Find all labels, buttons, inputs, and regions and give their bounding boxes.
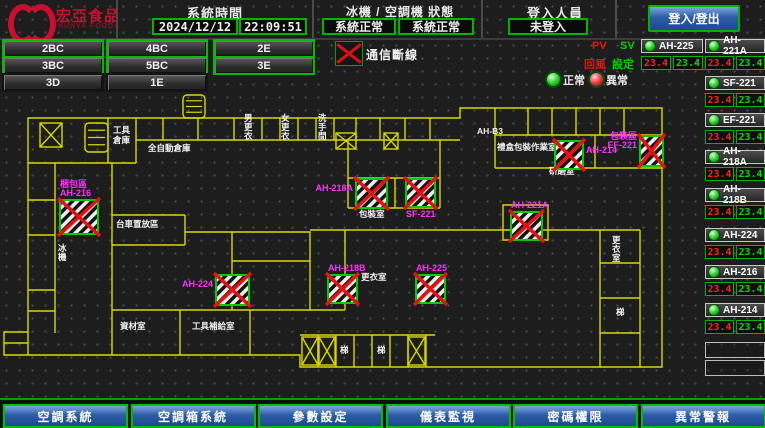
device-label: AH-224 <box>182 279 213 289</box>
device-label: AH-225 <box>416 263 447 273</box>
normal-led-icon <box>545 71 562 88</box>
unit-name-label: AH-225 <box>659 41 693 52</box>
abnormal-legend-label: 異常 <box>606 72 628 88</box>
floor-button-3E[interactable]: 3E <box>213 56 315 75</box>
header-divider <box>481 0 483 38</box>
unit-SF-221[interactable]: SF-221 <box>705 76 765 90</box>
sv-value: 23.4 <box>736 282 765 296</box>
room-label: 台車置放區 <box>116 219 159 229</box>
sv-column-label: SV <box>620 40 635 52</box>
sv-value: 23.4 <box>673 56 703 70</box>
unit-name-label: AH-218B <box>723 184 764 206</box>
unit-AH-221A[interactable]: AH-221A <box>705 39 765 53</box>
room-label: 梯 <box>377 345 386 355</box>
unit-AH-225[interactable]: AH-225 <box>641 39 703 53</box>
sv-value: 23.4 <box>736 130 765 144</box>
chiller-status-value: 系統正常 <box>322 18 396 35</box>
device-label: 梱包區AH-216 <box>60 178 91 198</box>
header-bar: 宏亞食品 HUNYA FOODS 系統時間 2024/12/12 22:09:5… <box>0 0 765 40</box>
room-label: 禮盒包裝作業室 <box>497 142 557 152</box>
unit-AH-224[interactable]: AH-224 <box>705 228 765 242</box>
sv-desc-label: 設定 <box>612 56 634 72</box>
status-led-icon <box>708 40 720 52</box>
unit-name-label: SF-221 <box>723 78 756 89</box>
status-led-icon <box>644 40 656 52</box>
sv-value: 23.4 <box>736 167 765 181</box>
status-led-icon <box>708 77 720 89</box>
room-label: 更衣室 <box>612 235 621 263</box>
plan-device-AH-218A[interactable]: AH-218A <box>315 177 389 210</box>
login-logout-button[interactable]: 登入/登出 <box>648 5 740 32</box>
room-label: 男更衣 <box>244 113 253 141</box>
unit-values-AH-216: 23.423.4 <box>705 282 765 296</box>
room-label: 洗手間 <box>318 113 327 141</box>
unit-name-label: EF-221 <box>723 115 756 126</box>
room-label: 冰機 <box>58 243 67 262</box>
empty-unit-slot <box>705 360 765 376</box>
device-label: 包裝區EF-221 <box>607 130 637 150</box>
empty-unit-slot <box>705 342 765 358</box>
room-label: 梯 <box>616 307 625 317</box>
pv-value: 23.4 <box>705 282 734 296</box>
room-label: 更衣室 <box>361 272 387 282</box>
pv-value: 23.4 <box>705 245 734 259</box>
sv-value: 23.4 <box>736 93 765 107</box>
unit-name-label: AH-218A <box>723 146 764 168</box>
header-divider <box>615 0 617 38</box>
status-led-icon <box>708 304 720 316</box>
unit-name-label: AH-214 <box>723 305 757 316</box>
menu-button-6[interactable]: 異常警報 <box>641 404 765 428</box>
room-label: 包裝室 <box>359 209 385 219</box>
device-label: AH-221A <box>511 200 549 210</box>
plan-wall <box>180 310 250 355</box>
plan-device-EF-221[interactable]: 包裝區EF-221 <box>607 130 665 168</box>
floor-button-1E[interactable]: 1E <box>106 73 208 92</box>
comm-loss-icon <box>335 41 363 66</box>
plan-device-AH-225[interactable]: AH-225 <box>414 263 447 305</box>
pv-desc-label: 回風 <box>584 56 606 72</box>
pv-column-label: PV <box>592 40 607 52</box>
sv-value: 23.4 <box>736 320 765 334</box>
unit-AH-218A[interactable]: AH-218A <box>705 150 765 164</box>
header-divider <box>116 0 118 38</box>
status-led-icon <box>708 229 720 241</box>
room-label: 全自動倉庫 <box>147 143 191 153</box>
header-divider <box>312 0 314 38</box>
abnormal-led-icon <box>588 71 605 88</box>
sv-value: 23.4 <box>736 56 765 70</box>
sv-value: 23.4 <box>736 245 765 259</box>
pv-value: 23.4 <box>705 167 734 181</box>
ahu-status-value: 系統正常 <box>398 18 474 35</box>
floor-plan-svg: 工具倉庫全自動倉庫男更衣女更衣洗手間台車置放區AH-B3禮盒包裝作業室研磨室包裝… <box>0 93 703 400</box>
login-user-value: 未登入 <box>508 18 588 35</box>
room-label: AH-B3 <box>477 126 503 136</box>
plan-device-SF-221[interactable]: SF-221 <box>404 177 437 219</box>
unit-AH-218B[interactable]: AH-218B <box>705 188 765 202</box>
system-date-value: 2024/12/12 <box>152 18 238 35</box>
unit-values-AH-224: 23.423.4 <box>705 245 765 259</box>
company-name-en: HUNYA FOODS <box>58 23 120 30</box>
system-clock-value: 22:09:51 <box>239 18 307 35</box>
plan-wall <box>28 163 55 333</box>
menu-button-4[interactable]: 儀表監視 <box>386 404 511 428</box>
comm-loss-label: 通信斷線 <box>366 46 418 63</box>
plan-wall <box>163 118 430 140</box>
pv-value: 23.4 <box>705 205 734 219</box>
unit-values-AH-214: 23.423.4 <box>705 320 765 334</box>
status-led-icon <box>708 151 720 163</box>
unit-name-label: AH-224 <box>723 230 757 241</box>
status-led-icon <box>708 266 720 278</box>
unit-values-AH-221A: 23.423.4 <box>705 56 765 70</box>
unit-name-label: AH-216 <box>723 267 757 278</box>
unit-AH-214[interactable]: AH-214 <box>705 303 765 317</box>
device-label: AH-218A <box>315 183 353 193</box>
unit-name-label: AH-221A <box>723 35 764 57</box>
menu-button-5[interactable]: 密碼權限 <box>513 404 638 428</box>
plan-device-AH-224[interactable]: AH-224 <box>182 273 251 307</box>
menu-button-3[interactable]: 參數設定 <box>258 404 383 428</box>
plan-wall <box>4 332 28 355</box>
room-label: 工具 <box>113 125 131 135</box>
menu-button-2[interactable]: 空調箱系統 <box>131 404 256 428</box>
status-led-icon <box>708 114 720 126</box>
pv-value: 23.4 <box>705 130 734 144</box>
room-label: 資材室 <box>119 321 146 331</box>
room-label: 工具補給室 <box>192 321 235 331</box>
floor-button-3D[interactable]: 3D <box>2 73 104 92</box>
plan-device-AH-221A[interactable]: AH-221A <box>509 200 549 242</box>
unit-values-EF-221: 23.423.4 <box>705 130 765 144</box>
unit-values-AH-225: 23.423.4 <box>641 56 703 70</box>
hmi-screen: { "header": { "logo": {"line1": "宏亞食品", … <box>0 0 765 426</box>
pv-value: 23.4 <box>641 56 671 70</box>
device-label: SF-221 <box>406 209 436 219</box>
footer-menu-bar: 空調系統空調箱系統參數設定儀表監視密碼權限異常警報 <box>0 398 765 428</box>
menu-button-1[interactable]: 空調系統 <box>3 404 128 428</box>
pv-value: 23.4 <box>705 56 734 70</box>
status-led-icon <box>708 189 720 201</box>
room-label: 女更衣 <box>281 113 290 141</box>
pv-value: 23.4 <box>705 93 734 107</box>
floor-plan: 工具倉庫全自動倉庫男更衣女更衣洗手間台車置放區AH-B3禮盒包裝作業室研磨室包裝… <box>0 93 703 400</box>
plan-device-AH-216[interactable]: 梱包區AH-216 <box>58 178 100 236</box>
unit-values-AH-218B: 23.423.4 <box>705 205 765 219</box>
unit-values-SF-221: 23.423.4 <box>705 93 765 107</box>
plan-device-AH-218B[interactable]: AH-218B <box>326 263 366 305</box>
company-logo-icon <box>6 3 52 35</box>
unit-AH-216[interactable]: AH-216 <box>705 265 765 279</box>
unit-values-AH-218A: 23.423.4 <box>705 167 765 181</box>
normal-legend-label: 正常 <box>563 72 585 88</box>
pv-value: 23.4 <box>705 320 734 334</box>
room-label: 梯 <box>340 345 349 355</box>
device-label: AH-218B <box>328 263 366 273</box>
sv-value: 23.4 <box>736 205 765 219</box>
unit-EF-221[interactable]: EF-221 <box>705 113 765 127</box>
room-label: 倉庫 <box>112 135 131 145</box>
